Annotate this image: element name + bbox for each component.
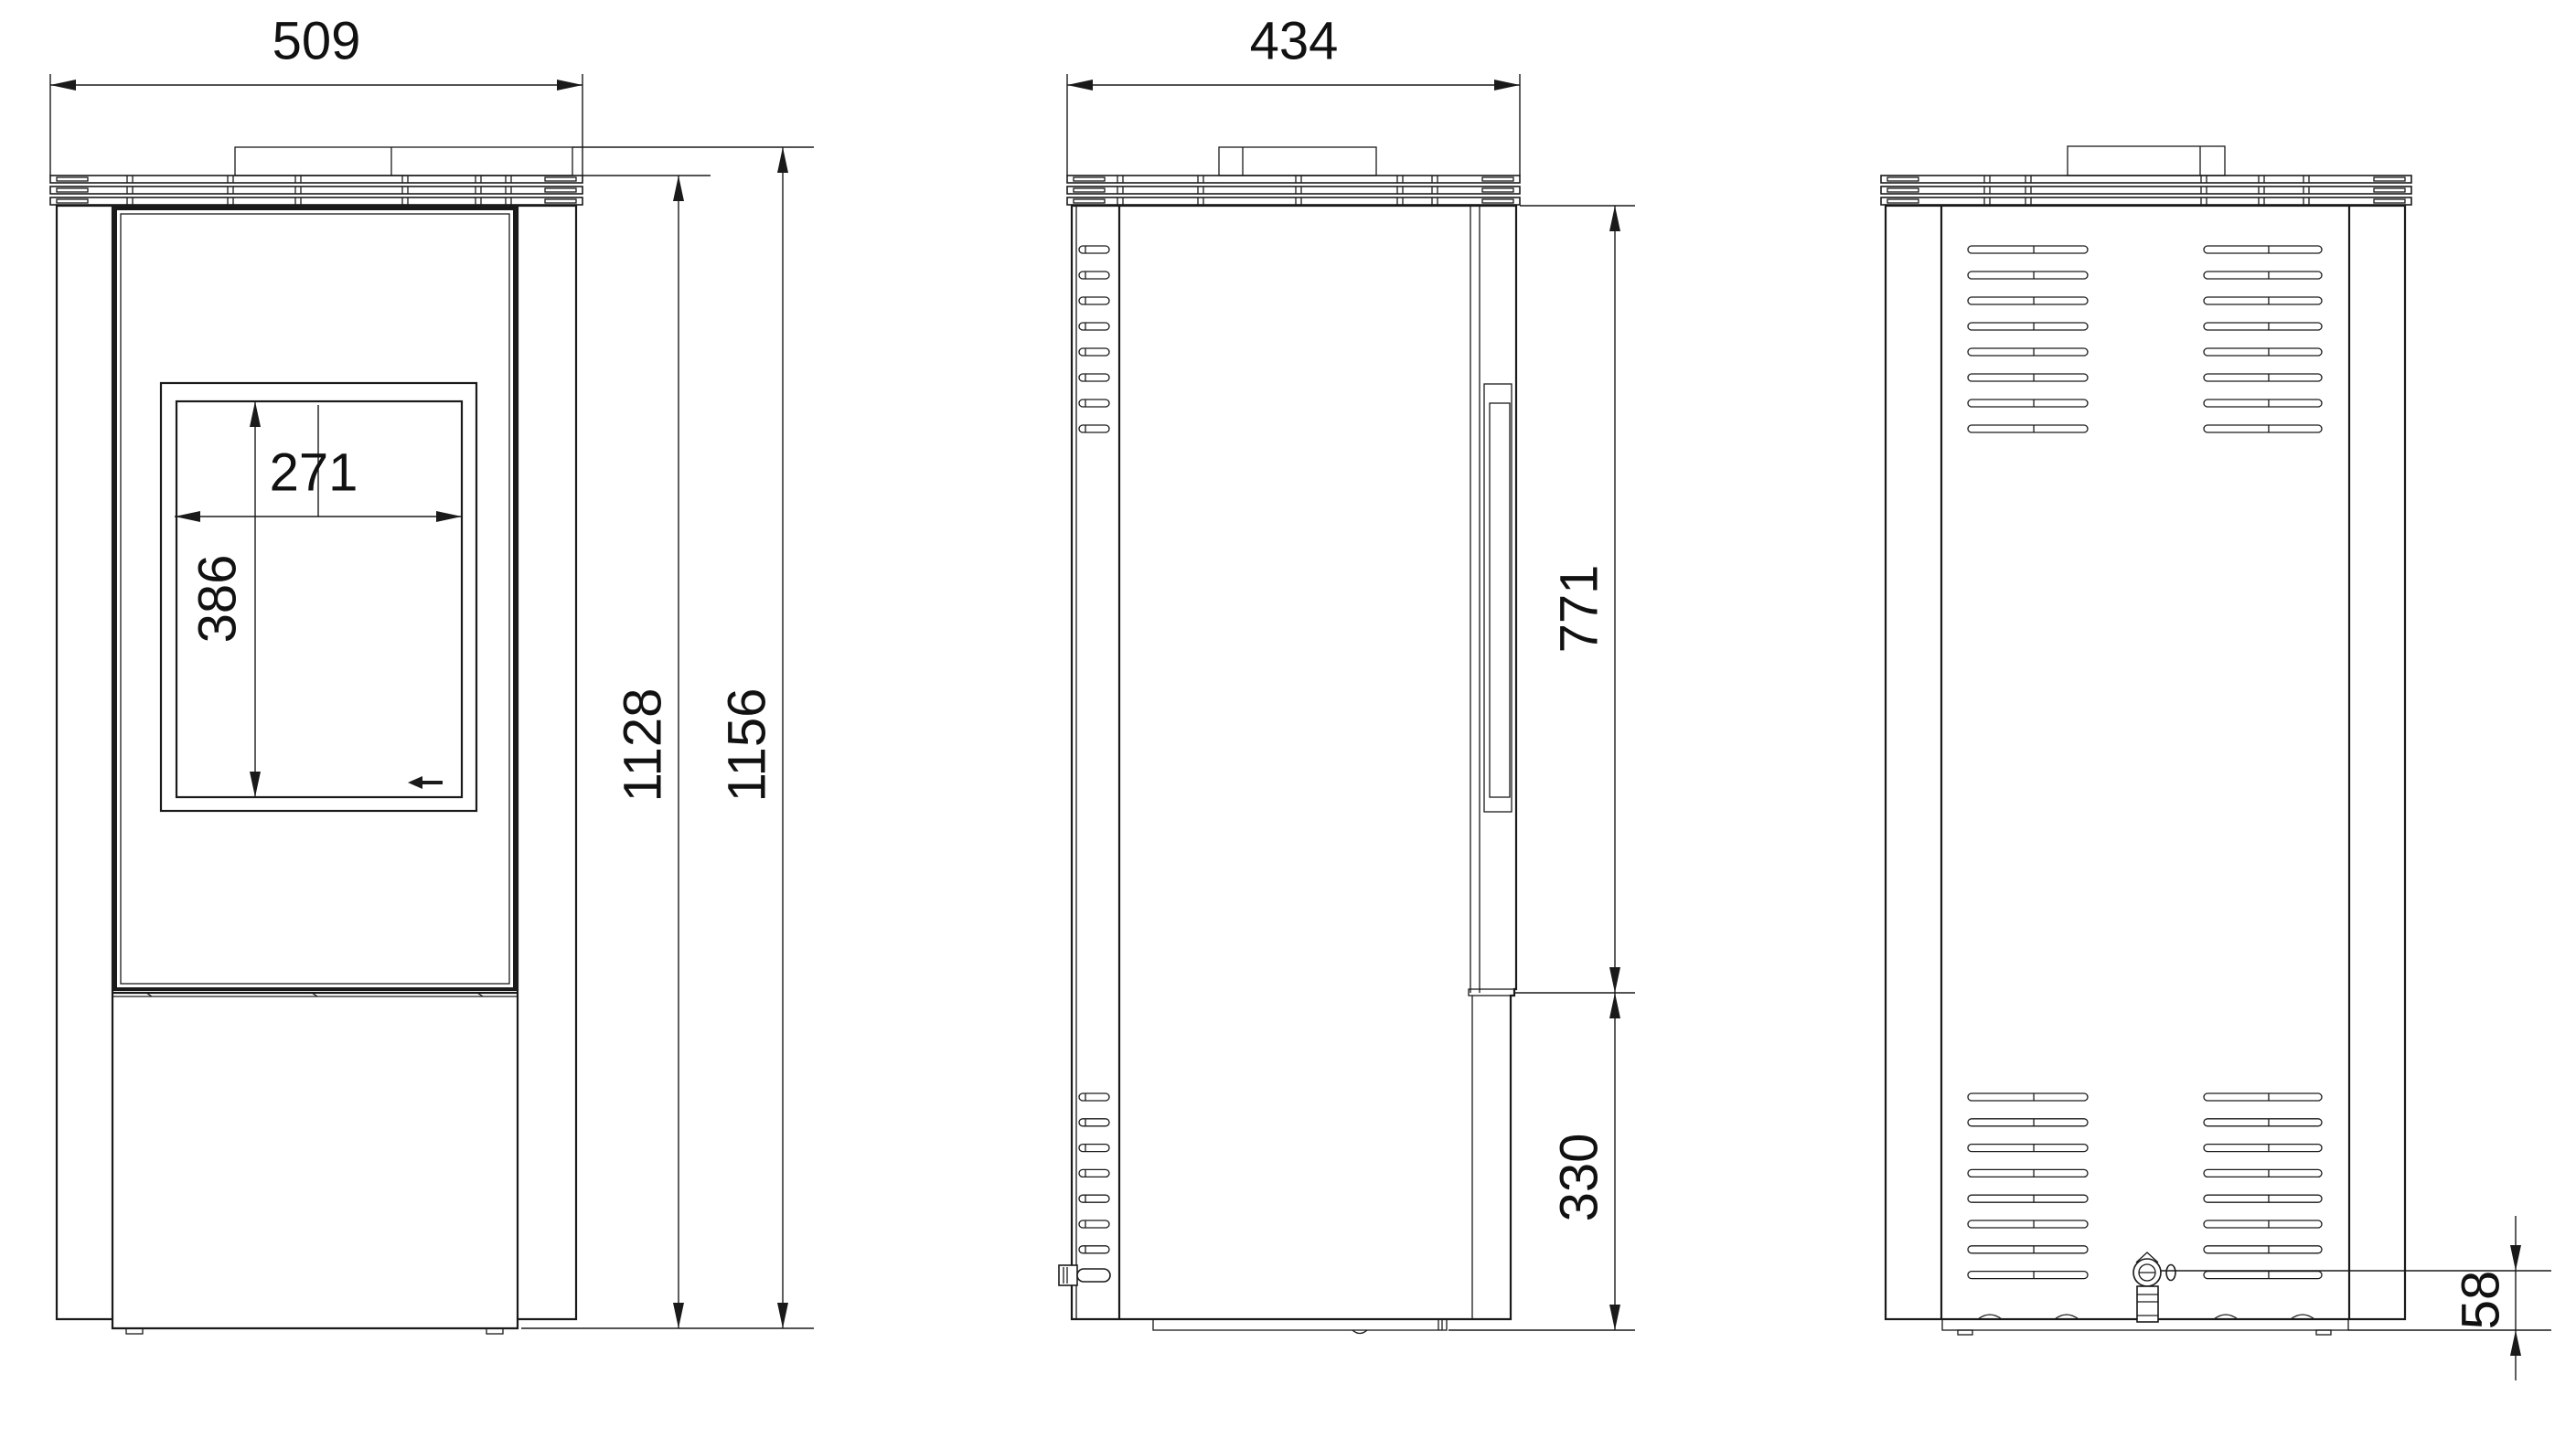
vent-slot <box>1079 1145 1109 1152</box>
dim-upper-section-label: 771 <box>1550 565 1609 654</box>
front-body <box>57 206 576 1328</box>
vent-slot <box>1079 246 1109 253</box>
dim-upper-section: 771 <box>1520 206 1635 993</box>
rear-connector-fitting <box>2133 1252 2175 1322</box>
vent-slot <box>1079 400 1109 407</box>
vent-slot <box>2204 1195 2322 1202</box>
vent-slot <box>2204 272 2322 279</box>
vent-slot <box>1968 1169 2088 1177</box>
dim-arrowhead <box>175 511 200 522</box>
vent-slot <box>1968 1145 2088 1152</box>
vent-slot <box>2204 400 2322 407</box>
vent-slot <box>1079 1119 1109 1126</box>
dimension-arrows <box>50 80 2521 1356</box>
vent-slot <box>1968 323 2088 330</box>
vent-slot <box>2204 1220 2322 1228</box>
vent-slot <box>2204 348 2322 356</box>
dim-arrowhead <box>777 1303 788 1328</box>
vent-slot <box>1968 1195 2088 1202</box>
vent-slot <box>1079 374 1109 381</box>
stove-three-view-drawing: 271 386 509 1128 1156 <box>0 0 2576 1449</box>
air-intake-knob <box>1059 1265 1110 1285</box>
side-base-plate <box>1153 1319 1447 1330</box>
vent-slot <box>1079 272 1109 279</box>
dim-body-height: 1128 <box>583 176 711 1328</box>
dim-arrowhead <box>250 401 261 427</box>
dim-body-height-label: 1128 <box>614 688 673 803</box>
rear-flue-channel-inner <box>1490 403 1510 797</box>
door-handle-arrow-icon <box>408 776 443 789</box>
vent-slot <box>2204 1119 2322 1126</box>
dim-total-height-label: 1156 <box>718 688 777 803</box>
vent-slot <box>1079 1169 1109 1177</box>
vent-slot <box>1079 323 1109 330</box>
vent-slot <box>1079 425 1109 432</box>
front-top-plate <box>50 176 583 205</box>
vent-slot <box>2204 1272 2322 1279</box>
dim-arrowhead <box>1609 206 1620 231</box>
stove-door-inner-edge <box>121 214 509 984</box>
plate-layer <box>50 176 583 183</box>
stove-door <box>115 208 515 989</box>
back-body <box>1886 206 2405 1319</box>
dim-arrowhead <box>1067 80 1093 91</box>
vent-slot <box>2204 323 2322 330</box>
vent-slot <box>1968 425 2088 432</box>
vent-slot <box>1968 348 2088 356</box>
side-body <box>1072 206 1516 1319</box>
vent-slot <box>1968 1093 2088 1101</box>
back-view: 58 <box>1881 146 2551 1380</box>
dim-front-width: 509 <box>50 12 583 176</box>
dim-glass-height-label: 386 <box>188 555 248 644</box>
dim-arrowhead <box>2510 1330 2521 1356</box>
dim-arrowhead <box>673 1303 684 1328</box>
dim-arrowhead <box>2510 1245 2521 1271</box>
dim-base-section-label: 330 <box>1550 1134 1609 1222</box>
dim-arrowhead <box>777 147 788 173</box>
back-foot <box>2316 1330 2331 1335</box>
dim-arrowhead <box>436 511 462 522</box>
vent-slot <box>2204 374 2322 381</box>
dim-arrowhead <box>250 772 261 797</box>
vent-slot <box>1968 297 2088 304</box>
dim-arrowhead <box>1609 993 1620 1018</box>
dim-arrowhead <box>557 80 583 91</box>
front-flue-collar <box>235 147 572 176</box>
rear-flue-channel <box>1484 384 1512 812</box>
vent-slot <box>2204 1145 2322 1152</box>
dim-front-width-label: 509 <box>273 12 361 71</box>
side-vent-grid-bottom <box>1079 1093 1109 1279</box>
vent-slot <box>1968 1272 2088 1279</box>
vent-slot <box>2204 246 2322 253</box>
drawing-canvas: 271 386 509 1128 1156 <box>0 0 2576 1449</box>
dim-base-section: 330 <box>1448 993 1635 1330</box>
side-vent-grid-top <box>1079 246 1109 432</box>
vent-slot <box>2204 1169 2322 1177</box>
back-vent-grid-top <box>1968 246 2322 432</box>
vent-slot <box>2204 1246 2322 1253</box>
plate-layer <box>1881 197 2411 205</box>
plate-layer <box>1067 186 1520 194</box>
back-top-plate <box>1881 176 2411 205</box>
vent-slot <box>1968 374 2088 381</box>
dim-arrowhead <box>1609 1305 1620 1330</box>
back-flue-collar <box>2068 146 2225 176</box>
vent-slot <box>1079 1195 1109 1202</box>
plate-layer <box>1067 197 1520 205</box>
vent-slot <box>1968 400 2088 407</box>
side-view: 434 771 330 <box>1059 12 1635 1334</box>
back-vent-grid-bottom <box>1968 1093 2322 1279</box>
front-view: 271 386 509 1128 1156 <box>50 12 814 1335</box>
dim-arrowhead <box>673 176 684 201</box>
vent-slot <box>1079 297 1109 304</box>
dim-glass-width: 271 <box>175 405 462 517</box>
plate-layer <box>50 186 583 194</box>
vent-slot <box>1968 1119 2088 1126</box>
plate-layer <box>1881 176 2411 183</box>
dim-depth-label: 434 <box>1250 12 1339 71</box>
vent-slot <box>2204 425 2322 432</box>
dim-connector-height: 58 <box>2160 1216 2551 1380</box>
vent-slot <box>1079 1093 1109 1101</box>
back-foot <box>1958 1330 1972 1335</box>
plate-layer <box>50 197 583 205</box>
dim-arrowhead <box>1494 80 1520 91</box>
plate-layer <box>1067 176 1520 183</box>
dim-glass-height: 386 <box>188 401 256 797</box>
side-top-plate <box>1067 176 1520 205</box>
dim-depth: 434 <box>1067 12 1520 176</box>
plate-layer <box>1881 186 2411 194</box>
vent-slot <box>1968 272 2088 279</box>
vent-slot <box>1968 246 2088 253</box>
rear-step-ledge <box>1469 989 1514 996</box>
vent-slot <box>1079 1246 1109 1253</box>
vent-slot <box>1079 1220 1109 1228</box>
dim-arrowhead <box>1609 967 1620 993</box>
dim-glass-width-label: 271 <box>270 443 358 503</box>
dim-arrowhead <box>50 80 76 91</box>
dim-connector-height-label: 58 <box>2452 1271 2511 1330</box>
vent-slot <box>1079 348 1109 356</box>
vent-slot <box>2204 1093 2322 1101</box>
vent-slot <box>1968 1246 2088 1253</box>
vent-slot <box>1968 1220 2088 1228</box>
vent-slot <box>2204 297 2322 304</box>
